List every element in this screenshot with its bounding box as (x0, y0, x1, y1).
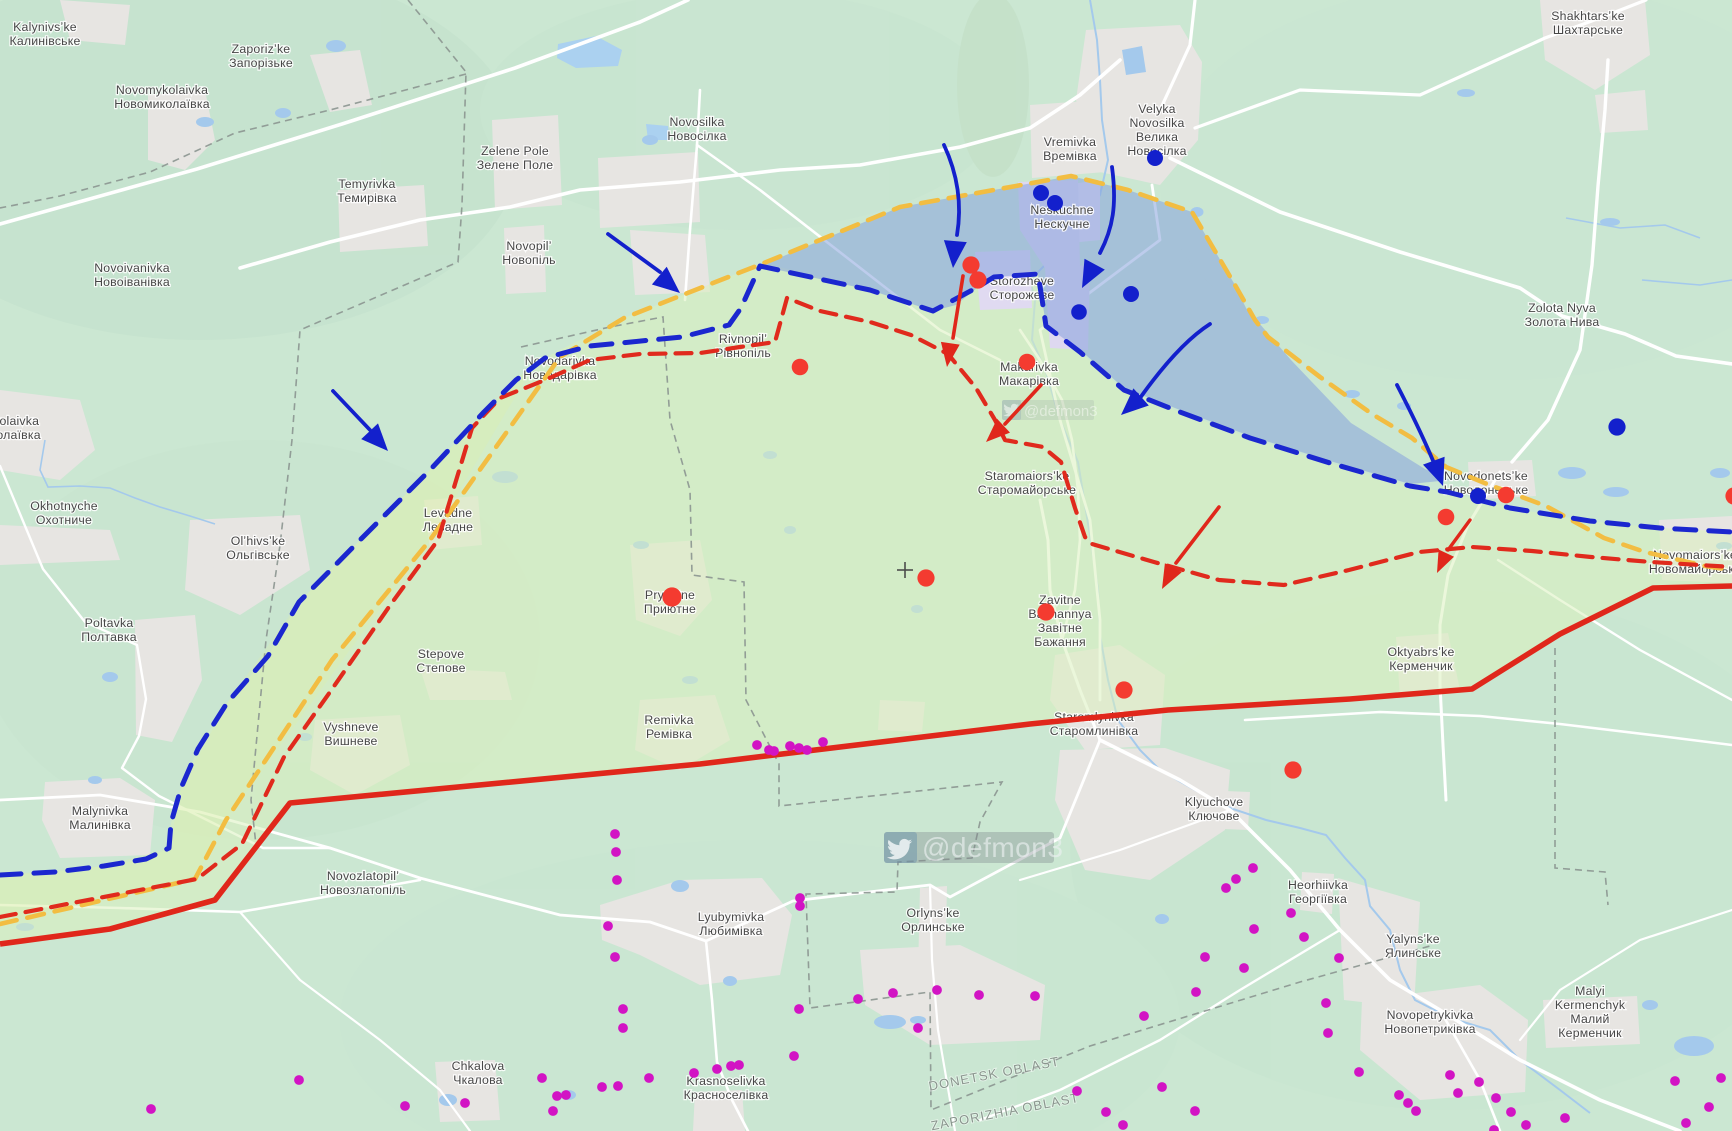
svg-text:Любимівка: Любимівка (699, 924, 762, 938)
svg-text:Сторожеве: Сторожеве (990, 288, 1055, 302)
svg-text:Левадне: Левадне (423, 520, 473, 534)
svg-text:Новосілка: Новосілка (667, 129, 726, 143)
svg-text:Vyshneve: Vyshneve (323, 720, 378, 734)
svg-text:Kalynivsʼke: Kalynivsʼke (13, 20, 77, 34)
svg-text:Орлинське: Орлинське (901, 920, 965, 934)
svg-text:Novopetrykivka: Novopetrykivka (1387, 1008, 1474, 1022)
svg-text:Времівка: Времівка (1043, 149, 1097, 163)
svg-text:Malyi: Malyi (1575, 984, 1605, 998)
svg-text:Старомайорське: Старомайорське (978, 483, 1076, 497)
svg-text:Lyubymivka: Lyubymivka (698, 910, 764, 924)
svg-text:Novosilka: Novosilka (669, 115, 724, 129)
svg-text:Chkalova: Chkalova (452, 1059, 505, 1073)
svg-text:Olʼhivsʼke: Olʼhivsʼke (231, 534, 286, 548)
svg-text:Золота Нива: Золота Нива (1525, 315, 1600, 329)
svg-text:Shakhtarsʼke: Shakhtarsʼke (1551, 9, 1625, 23)
svg-text:Kermenchyk: Kermenchyk (1555, 998, 1626, 1012)
svg-text:Heorhiivka: Heorhiivka (1288, 878, 1348, 892)
svg-text:Zolota Nyva: Zolota Nyva (1528, 301, 1596, 315)
svg-text:Вишневе: Вишневе (324, 734, 377, 748)
svg-text:Макарівка: Макарівка (999, 374, 1059, 388)
svg-text:Шахтарське: Шахтарське (1553, 23, 1623, 37)
svg-text:Okhotnyche: Okhotnyche (30, 499, 98, 513)
svg-text:Zaporizʼke: Zaporizʼke (232, 42, 291, 56)
svg-text:Orlynsʼke: Orlynsʼke (906, 906, 959, 920)
svg-text:Новозлатопіль: Новозлатопіль (320, 883, 406, 897)
svg-text:Малий: Малий (1570, 1012, 1609, 1026)
svg-text:Полтавка: Полтавка (81, 630, 137, 644)
svg-text:Novopilʼ: Novopilʼ (506, 239, 551, 253)
svg-text:Бажання: Бажання (1034, 635, 1086, 649)
svg-text:Запорізьке: Запорізьке (229, 56, 293, 70)
svg-text:Vremivka: Vremivka (1044, 135, 1096, 149)
svg-text:Ольгівське: Ольгівське (226, 548, 290, 562)
svg-text:Новопетриківка: Новопетриківка (1384, 1022, 1475, 1036)
svg-text:Новопіль: Новопіль (502, 253, 556, 267)
svg-text:Зелене Поле: Зелене Поле (477, 158, 554, 172)
svg-text:Малинівка: Малинівка (69, 818, 131, 832)
svg-text:Керменчик: Керменчик (1558, 1026, 1622, 1040)
svg-text:@defmon3: @defmon3 (922, 832, 1063, 863)
svg-text:Новомиколаївка: Новомиколаївка (0, 428, 41, 442)
svg-text:Новоіванівка: Новоіванівка (94, 275, 170, 289)
svg-text:Велика: Велика (1136, 130, 1178, 144)
svg-text:Новомиколаївка: Новомиколаївка (114, 97, 210, 111)
svg-text:Керменчик: Керменчик (1389, 659, 1453, 673)
svg-text:Старомлинівка: Старомлинівка (1050, 724, 1139, 738)
svg-text:Staromaiorsʼke: Staromaiorsʼke (985, 469, 1070, 483)
svg-text:Степове: Степове (416, 661, 465, 675)
svg-text:@defmon3: @defmon3 (1024, 403, 1098, 420)
svg-text:Remivka: Remivka (644, 713, 693, 727)
svg-text:Георгіївка: Георгіївка (1289, 892, 1347, 906)
svg-text:Охотниче: Охотниче (36, 513, 92, 527)
svg-text:Калинівське: Калинівське (9, 34, 80, 48)
svg-text:Завітне: Завітне (1038, 621, 1082, 635)
svg-text:Krasnoselivka: Krasnoselivka (686, 1074, 765, 1088)
svg-text:Novomykolaivka: Novomykolaivka (0, 414, 39, 428)
svg-text:Stepove: Stepove (418, 647, 465, 661)
svg-text:Темирівка: Темирівка (337, 191, 396, 205)
svg-text:Ремівка: Ремівка (646, 727, 692, 741)
svg-text:Нескучне: Нескучне (1034, 217, 1089, 231)
svg-text:Чкалова: Чкалова (453, 1073, 502, 1087)
svg-text:Ялинське: Ялинське (1385, 946, 1441, 960)
svg-text:Oktyabrsʼke: Oktyabrsʼke (1387, 645, 1454, 659)
svg-text:Красноселівка: Красноселівка (684, 1088, 769, 1102)
svg-text:Malynivka: Malynivka (72, 804, 128, 818)
svg-text:Novomykolaivka: Novomykolaivka (116, 83, 208, 97)
svg-text:Poltavka: Poltavka (85, 616, 134, 630)
svg-text:Novoivanivka: Novoivanivka (94, 261, 170, 275)
svg-text:Ключове: Ключове (1188, 809, 1239, 823)
svg-text:Klyuchove: Klyuchove (1185, 795, 1244, 809)
svg-text:Novozlatopilʼ: Novozlatopilʼ (327, 869, 399, 883)
svg-text:Temyrivka: Temyrivka (338, 177, 395, 191)
svg-text:Yalynsʼke: Yalynsʼke (1386, 932, 1440, 946)
svg-text:Zelene Pole: Zelene Pole (481, 144, 549, 158)
svg-text:Novosilka: Novosilka (1129, 116, 1184, 130)
svg-text:Velyka: Velyka (1138, 102, 1175, 116)
